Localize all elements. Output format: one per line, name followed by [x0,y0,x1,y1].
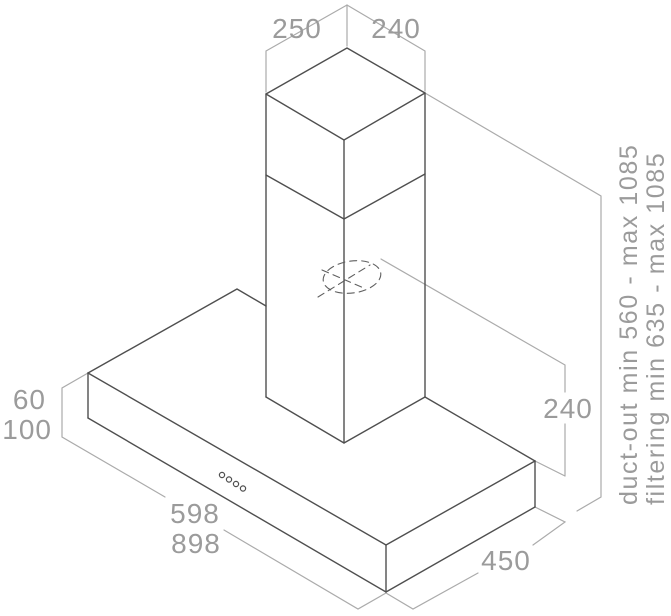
dim-duct-height-label: 240 [543,393,593,424]
dim-front-height-label: 60 [13,384,46,415]
duct-out-range-note: duct-out min 560 - max 1085 [615,144,643,505]
dim-depth-label: 450 [481,545,531,576]
dim-chimney-width-label: 240 [371,13,421,44]
chimney-outline [266,48,425,443]
hood-body-outline [88,289,535,592]
hood-diagram-svg: 250 240 60 100 598 898 450 240 duct-out … [0,0,671,616]
dim-total-height-label: 100 [2,414,52,445]
dim-inner-width-label: 598 [170,498,220,529]
dimension-drawing: 250 240 60 100 598 898 450 240 duct-out … [0,0,671,616]
dim-chimney-depth-label: 250 [272,13,322,44]
control-buttons-dots [219,472,245,491]
dim-overall-width-label: 898 [171,528,221,559]
duct-outlet-symbol [318,257,383,297]
dimension-lines [62,5,601,609]
filtering-range-note: filtering min 635 - max 1085 [642,152,670,505]
